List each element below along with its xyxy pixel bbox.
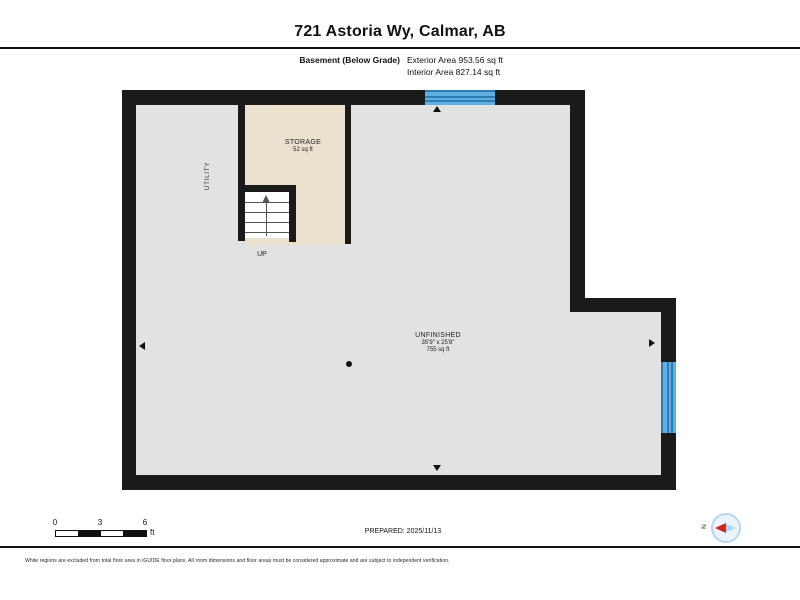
wall-top bbox=[122, 90, 585, 105]
window-glass-line bbox=[425, 96, 495, 98]
unfinished-room-area: 755 sq ft bbox=[388, 347, 488, 353]
stair-arrow-head-icon bbox=[262, 195, 270, 203]
prepared-date: PREPARED: 2025/11/13 bbox=[343, 528, 463, 535]
floor-area-main bbox=[136, 105, 570, 475]
floor-area-right bbox=[570, 312, 661, 475]
wall-stair-top bbox=[238, 185, 296, 192]
disclaimer-text: White regions are excluded from total fl… bbox=[25, 558, 450, 564]
floor-name-label: Basement (Below Grade) bbox=[0, 55, 400, 65]
compass-needle-south-icon bbox=[726, 524, 736, 532]
dimension-marker-left-icon bbox=[139, 342, 145, 350]
scale-bar-segment bbox=[123, 531, 146, 536]
page-title: 721 Astoria Wy, Calmar, AB bbox=[0, 23, 800, 41]
window-glass-line bbox=[425, 90, 495, 92]
exterior-area-label: Exterior Area 953.56 sq ft bbox=[407, 55, 503, 65]
scale-bar-segment bbox=[78, 531, 101, 536]
interior-area-label: Interior Area 827.14 sq ft bbox=[407, 67, 500, 77]
wall-left bbox=[122, 90, 136, 490]
unfinished-room-dimensions: 35'9" x 25'8" bbox=[388, 340, 488, 346]
stair-direction-arrow bbox=[266, 201, 267, 236]
dimension-marker-bottom-icon bbox=[433, 465, 441, 471]
window-glass-line bbox=[661, 362, 663, 433]
utility-room-label: UTILITY bbox=[204, 146, 216, 206]
title-divider bbox=[0, 47, 800, 49]
scale-tick-label: 6 bbox=[140, 518, 150, 527]
window-glass-line bbox=[671, 362, 673, 433]
compass-north-label: N bbox=[701, 524, 708, 529]
compass-icon: N bbox=[711, 513, 741, 543]
window-top bbox=[425, 90, 495, 105]
scale-tick-label: 0 bbox=[50, 518, 60, 527]
scale-tick-label: 3 bbox=[95, 518, 105, 527]
dimension-marker-top-icon bbox=[433, 106, 441, 112]
camera-position-dot bbox=[346, 361, 352, 367]
unfinished-room-label: UNFINISHED 35'9" x 25'8" 755 sq ft bbox=[388, 332, 488, 353]
wall-stair-right bbox=[289, 192, 296, 242]
window-glass-line bbox=[667, 362, 669, 433]
scale-bar-ruler bbox=[55, 530, 147, 537]
storage-room-label: STORAGE 52 sq ft bbox=[253, 139, 353, 153]
storage-room-area: 52 sq ft bbox=[253, 147, 353, 153]
window-right bbox=[661, 362, 676, 433]
footer-divider bbox=[0, 546, 800, 548]
storage-room-name: STORAGE bbox=[253, 139, 353, 146]
wall-right-upper bbox=[570, 90, 585, 312]
wall-bottom bbox=[122, 475, 676, 490]
stairs-up-label: UP bbox=[242, 251, 282, 258]
window-glass-line bbox=[425, 100, 495, 102]
wall-storage-left bbox=[238, 105, 245, 241]
compass-needle-north-icon bbox=[715, 523, 726, 533]
scale-unit-label: ft bbox=[150, 528, 154, 537]
wall-storage-right bbox=[345, 105, 351, 244]
unfinished-room-name: UNFINISHED bbox=[388, 332, 488, 339]
dimension-marker-right-icon bbox=[649, 339, 655, 347]
floorplan-page: 721 Astoria Wy, Calmar, AB Basement (Bel… bbox=[0, 0, 800, 600]
